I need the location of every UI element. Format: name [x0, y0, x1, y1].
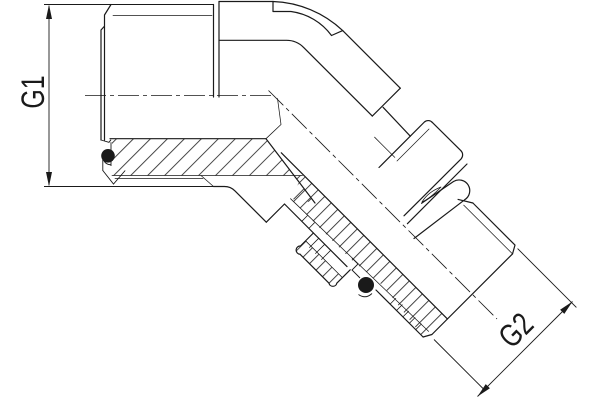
svg-text:G1: G1: [16, 75, 52, 108]
